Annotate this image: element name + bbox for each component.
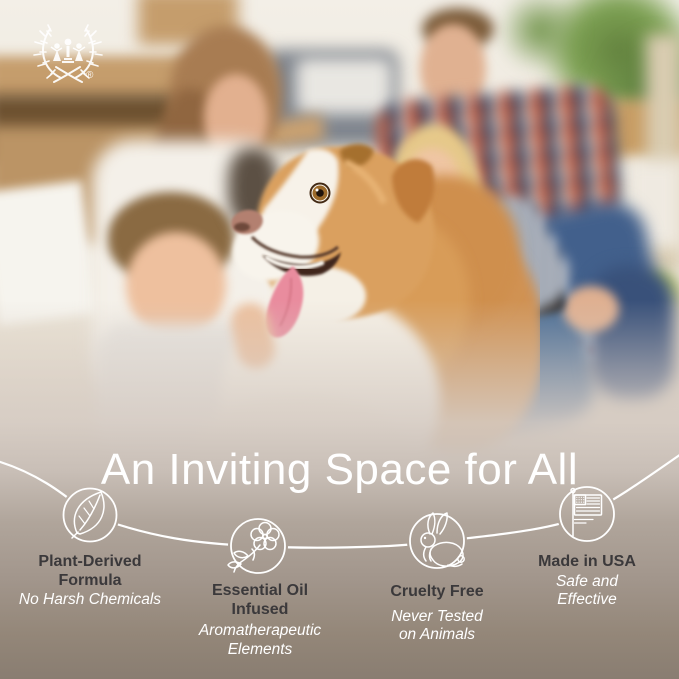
feature-subtitle-line: Aromatherapeutic <box>170 622 350 641</box>
feature-plant-derived: Plant-Derived Formula No Harsh Chemicals <box>0 553 180 610</box>
product-infographic: ® An Inviting Space for All <box>0 0 679 679</box>
feature-subtitle: Aromatherapeutic Elements <box>170 622 350 659</box>
feature-title-line: Infused <box>170 601 350 620</box>
feature-subtitle-line: on Animals <box>347 626 527 645</box>
feature-essential-oil: Essential Oil Infused Aromatherapeutic E… <box>170 582 350 660</box>
feature-subtitle: Safe and Effective <box>497 573 677 610</box>
feature-title-line: Plant-Derived <box>0 553 180 572</box>
feature-title-line: Essential Oil <box>170 582 350 601</box>
feature-subtitle-line: No Harsh Chemicals <box>0 591 180 610</box>
feature-made-in-usa: Made in USA Safe and Effective <box>497 553 677 610</box>
feature-subtitle: No Harsh Chemicals <box>0 591 180 610</box>
feature-subtitle-line: Elements <box>170 641 350 660</box>
feature-title: Made in USA <box>497 553 677 572</box>
feature-subtitle-line: Safe and <box>497 573 677 592</box>
feature-title: Plant-Derived Formula <box>0 553 180 590</box>
usa-flag-icon <box>571 489 602 537</box>
feature-subtitle: Never Tested on Animals <box>347 608 527 645</box>
feature-title-line: Formula <box>0 572 180 591</box>
feature-subtitle-line: Effective <box>497 591 677 610</box>
feature-subtitle-line: Never Tested <box>347 608 527 627</box>
feature-title-line: Made in USA <box>497 553 677 572</box>
feature-title: Essential Oil Infused <box>170 582 350 619</box>
